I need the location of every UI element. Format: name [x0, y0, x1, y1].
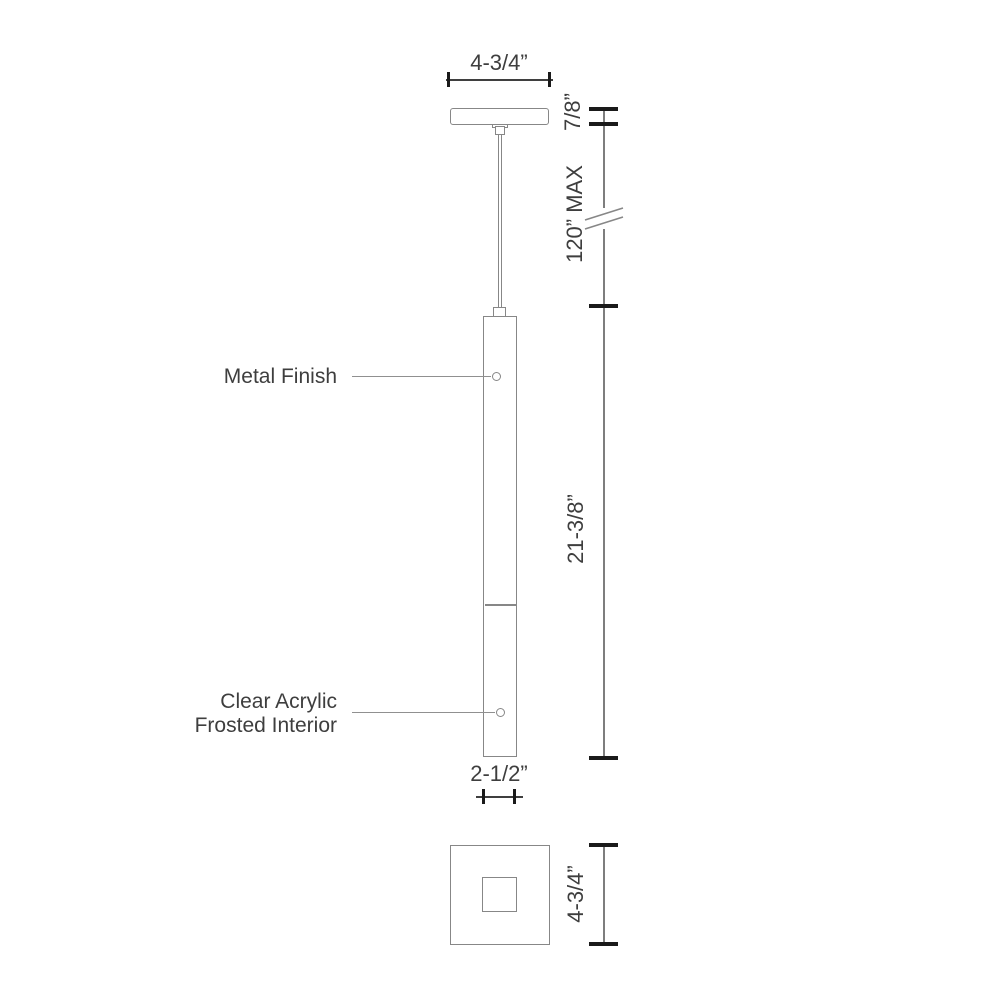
dim-tick-canopy-plan-top — [589, 843, 618, 847]
dim-line-vertical-lower — [603, 229, 605, 758]
acrylic-callout-dot — [496, 708, 505, 717]
dim-tick-canopy-width-right — [548, 72, 551, 87]
dim-tick-body-diameter-left — [482, 789, 485, 804]
dim-tick-canopy-bottom — [589, 122, 618, 126]
body-material-seam — [485, 604, 516, 606]
dim-label-canopy-plan-size: 4-3/4” — [563, 865, 589, 922]
dim-label-body-length: 21-3/8” — [563, 494, 589, 564]
canopy-side-view — [450, 108, 549, 125]
dim-line-canopy-width — [446, 79, 553, 81]
metal-finish-label: Metal Finish — [187, 365, 337, 389]
acrylic-label-line2: Frosted Interior — [137, 714, 337, 738]
dim-tick-body-diameter-right — [513, 789, 516, 804]
acrylic-label-line1: Clear Acrylic — [137, 690, 337, 714]
cord-grip — [495, 126, 505, 135]
dim-tick-canopy-top — [589, 107, 618, 111]
dimension-break-symbol — [583, 200, 625, 234]
technical-drawing-canvas: 4-3/4” Metal Finish Clear Acrylic Froste… — [0, 0, 1000, 1000]
dim-tick-canopy-width-left — [447, 72, 450, 87]
pendant-body — [483, 316, 517, 757]
dim-label-suspension-max: 120” MAX — [562, 165, 588, 263]
dim-tick-body-top — [589, 304, 618, 308]
dim-label-body-diameter: 2-1/2” — [429, 761, 569, 787]
canopy-plan-center-square — [482, 877, 517, 912]
dim-tick-body-bottom — [589, 756, 618, 760]
suspension-cable — [498, 135, 502, 307]
dim-label-canopy-height: 7/8” — [560, 93, 586, 131]
acrylic-leader-line — [352, 712, 495, 713]
dim-line-canopy-plan — [603, 846, 605, 944]
dim-tick-canopy-plan-bottom — [589, 942, 618, 946]
metal-finish-callout-dot — [492, 372, 501, 381]
metal-finish-leader-line — [352, 376, 491, 377]
